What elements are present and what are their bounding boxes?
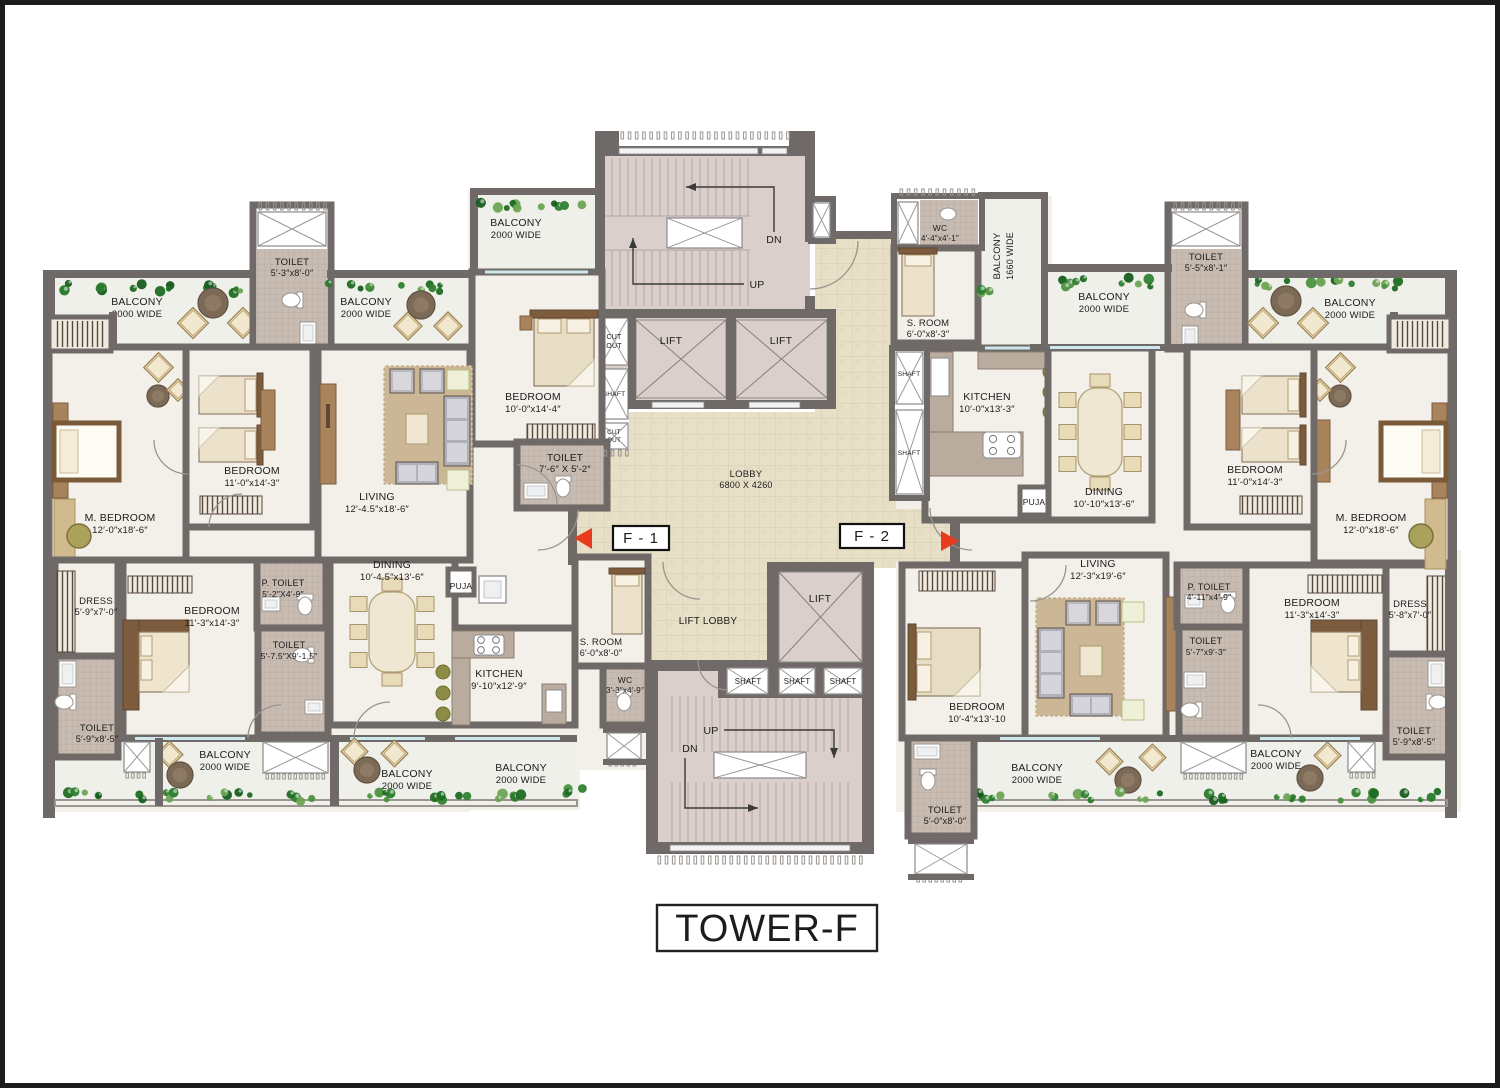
- svg-text:DRESS: DRESS: [1393, 599, 1427, 610]
- svg-text:LIFT: LIFT: [660, 335, 683, 347]
- svg-text:2000 WIDE: 2000 WIDE: [382, 781, 432, 792]
- svg-text:S. ROOM: S. ROOM: [907, 318, 950, 329]
- svg-text:2000 WIDE: 2000 WIDE: [1325, 310, 1375, 321]
- svg-text:SHAFT: SHAFT: [830, 677, 857, 686]
- svg-text:LIVING: LIVING: [1080, 558, 1116, 570]
- svg-text:5′-7.5″X9′-1.5″: 5′-7.5″X9′-1.5″: [261, 651, 318, 661]
- svg-text:TOILET: TOILET: [80, 723, 114, 734]
- svg-text:WC: WC: [618, 675, 633, 685]
- svg-text:SHAFT: SHAFT: [784, 677, 811, 686]
- svg-text:5′-8″x7′-0″: 5′-8″x7′-0″: [1389, 610, 1432, 620]
- svg-text:10′-10″x13′-6″: 10′-10″x13′-6″: [1073, 499, 1135, 510]
- svg-text:LIFT: LIFT: [770, 335, 793, 347]
- svg-text:BALCONY: BALCONY: [381, 768, 433, 780]
- svg-text:BALCONY: BALCONY: [495, 762, 547, 774]
- svg-text:6800 X 4260: 6800 X 4260: [719, 480, 772, 490]
- svg-text:KITCHEN: KITCHEN: [963, 391, 1011, 403]
- svg-text:9′-10″x12′-9″: 9′-10″x12′-9″: [471, 681, 527, 692]
- svg-text:TOILET: TOILET: [547, 453, 583, 464]
- svg-text:4′-4″x4′-1″: 4′-4″x4′-1″: [921, 234, 959, 243]
- svg-text:4′-11″x4′-9″: 4′-11″x4′-9″: [1187, 592, 1232, 602]
- svg-text:10′-0″x14′-4″: 10′-0″x14′-4″: [505, 404, 561, 415]
- svg-text:12′-0″x18′-6″: 12′-0″x18′-6″: [1343, 525, 1399, 536]
- svg-text:2000 WIDE: 2000 WIDE: [1012, 775, 1062, 786]
- svg-text:12′-0″x18′-6″: 12′-0″x18′-6″: [92, 525, 148, 536]
- svg-text:BALCONY: BALCONY: [1324, 297, 1376, 309]
- svg-text:BEDROOM: BEDROOM: [949, 701, 1005, 713]
- svg-text:10′-4″x13′-10: 10′-4″x13′-10: [948, 714, 1006, 725]
- svg-text:DRESS: DRESS: [79, 596, 113, 607]
- svg-text:DINING: DINING: [1085, 486, 1123, 498]
- svg-text:2000 WIDE: 2000 WIDE: [491, 230, 541, 241]
- svg-text:M. BEDROOM: M. BEDROOM: [1336, 512, 1407, 524]
- svg-text:11′-3″x14′-3″: 11′-3″x14′-3″: [1285, 610, 1340, 621]
- svg-text:7′-6″ X 5′-2″: 7′-6″ X 5′-2″: [539, 464, 591, 475]
- svg-text:LOBBY: LOBBY: [730, 469, 763, 480]
- svg-text:UP: UP: [704, 725, 719, 737]
- svg-text:2000 WIDE: 2000 WIDE: [341, 309, 391, 320]
- svg-text:BALCONY: BALCONY: [199, 749, 251, 761]
- svg-text:2000 WIDE: 2000 WIDE: [1251, 761, 1301, 772]
- svg-text:BEDROOM: BEDROOM: [1227, 464, 1283, 476]
- svg-text:BEDROOM: BEDROOM: [224, 465, 280, 477]
- svg-text:DN: DN: [682, 743, 698, 755]
- svg-text:BALCONY: BALCONY: [490, 217, 542, 229]
- svg-text:LIFT: LIFT: [809, 593, 832, 605]
- svg-text:2000 WIDE: 2000 WIDE: [200, 762, 250, 773]
- svg-text:TOILET: TOILET: [1190, 636, 1223, 646]
- svg-text:BEDROOM: BEDROOM: [184, 605, 240, 617]
- svg-text:DN: DN: [766, 234, 782, 246]
- svg-text:M. BEDROOM: M. BEDROOM: [85, 512, 156, 524]
- svg-text:10′-0″x13′-3″: 10′-0″x13′-3″: [959, 404, 1015, 415]
- svg-text:11′-0″x14′-3″: 11′-0″x14′-3″: [1228, 477, 1283, 488]
- svg-text:LIVING: LIVING: [359, 491, 395, 503]
- svg-text:F - 1: F - 1: [623, 530, 659, 547]
- svg-text:6′-0″x8′-0″: 6′-0″x8′-0″: [580, 648, 623, 658]
- svg-text:12′-4.5″x18′-6″: 12′-4.5″x18′-6″: [345, 504, 409, 515]
- svg-text:TOILET: TOILET: [928, 805, 962, 816]
- svg-text:5′-5″x8′-1″: 5′-5″x8′-1″: [1185, 263, 1228, 273]
- svg-text:BEDROOM: BEDROOM: [505, 391, 561, 403]
- svg-text:TOWER-F: TOWER-F: [675, 908, 859, 950]
- svg-text:UP: UP: [750, 279, 765, 291]
- svg-text:S. ROOM: S. ROOM: [580, 637, 623, 648]
- svg-text:CUT: CUT: [607, 429, 621, 436]
- svg-text:BALCONY: BALCONY: [340, 296, 392, 308]
- svg-text:SHAFT: SHAFT: [735, 677, 762, 686]
- svg-text:SHAFT: SHAFT: [898, 371, 921, 378]
- svg-text:BALCONY: BALCONY: [992, 232, 1003, 279]
- svg-text:LIFT LOBBY: LIFT LOBBY: [679, 616, 738, 627]
- svg-text:CUT: CUT: [607, 334, 623, 341]
- svg-text:BEDROOM: BEDROOM: [1284, 597, 1340, 609]
- svg-text:2000 WIDE: 2000 WIDE: [112, 309, 162, 320]
- svg-text:5′-3″x8′-0″: 5′-3″x8′-0″: [271, 268, 314, 278]
- svg-text:5′-9″x8′-5″: 5′-9″x8′-5″: [1393, 737, 1436, 747]
- svg-text:10′-4.5″x13′-6″: 10′-4.5″x13′-6″: [360, 572, 424, 583]
- svg-text:PUJA: PUJA: [1023, 497, 1046, 507]
- svg-text:BALCONY: BALCONY: [1078, 291, 1130, 303]
- svg-text:BALCONY: BALCONY: [111, 296, 163, 308]
- svg-text:TOILET: TOILET: [273, 640, 306, 650]
- svg-text:SHAFT: SHAFT: [898, 450, 921, 457]
- svg-text:TOILET: TOILET: [1397, 726, 1431, 737]
- svg-text:11′-3″x14′-3″: 11′-3″x14′-3″: [185, 618, 240, 629]
- svg-text:2000 WIDE: 2000 WIDE: [1079, 304, 1129, 315]
- svg-text:1660 WIDE: 1660 WIDE: [1005, 232, 1015, 280]
- svg-text:5′-0″x8′-0″: 5′-0″x8′-0″: [924, 816, 967, 826]
- svg-text:BALCONY: BALCONY: [1250, 748, 1302, 760]
- svg-text:SHAFT: SHAFT: [603, 391, 626, 398]
- svg-text:6′-0″x8′-3″: 6′-0″x8′-3″: [907, 329, 950, 339]
- svg-text:5′-7″x9′-3″: 5′-7″x9′-3″: [1186, 647, 1226, 657]
- svg-text:2000 WIDE: 2000 WIDE: [496, 775, 546, 786]
- svg-text:5′-9″x7′-0″: 5′-9″x7′-0″: [75, 607, 118, 617]
- svg-text:5′-2″X4′-9″: 5′-2″X4′-9″: [262, 589, 304, 599]
- svg-text:P. TOILET: P. TOILET: [262, 578, 305, 588]
- svg-text:BALCONY: BALCONY: [1011, 762, 1063, 774]
- svg-text:DINING: DINING: [373, 559, 411, 571]
- svg-text:5′-9″x8′-5″: 5′-9″x8′-5″: [76, 734, 119, 744]
- svg-text:OUT: OUT: [606, 343, 622, 350]
- svg-text:F - 2: F - 2: [854, 528, 890, 545]
- svg-text:11′-0″x14′-3″: 11′-0″x14′-3″: [225, 478, 280, 489]
- svg-text:TOILET: TOILET: [1189, 252, 1223, 263]
- svg-text:PUJA: PUJA: [450, 581, 473, 591]
- svg-text:KITCHEN: KITCHEN: [475, 668, 523, 680]
- svg-text:WC: WC: [933, 223, 948, 233]
- svg-text:P. TOILET: P. TOILET: [1188, 582, 1231, 592]
- svg-text:12′-3″x19′-6″: 12′-3″x19′-6″: [1070, 571, 1126, 582]
- svg-text:TOILET: TOILET: [275, 257, 309, 268]
- svg-text:3′-3″x4′-9″: 3′-3″x4′-9″: [606, 686, 644, 695]
